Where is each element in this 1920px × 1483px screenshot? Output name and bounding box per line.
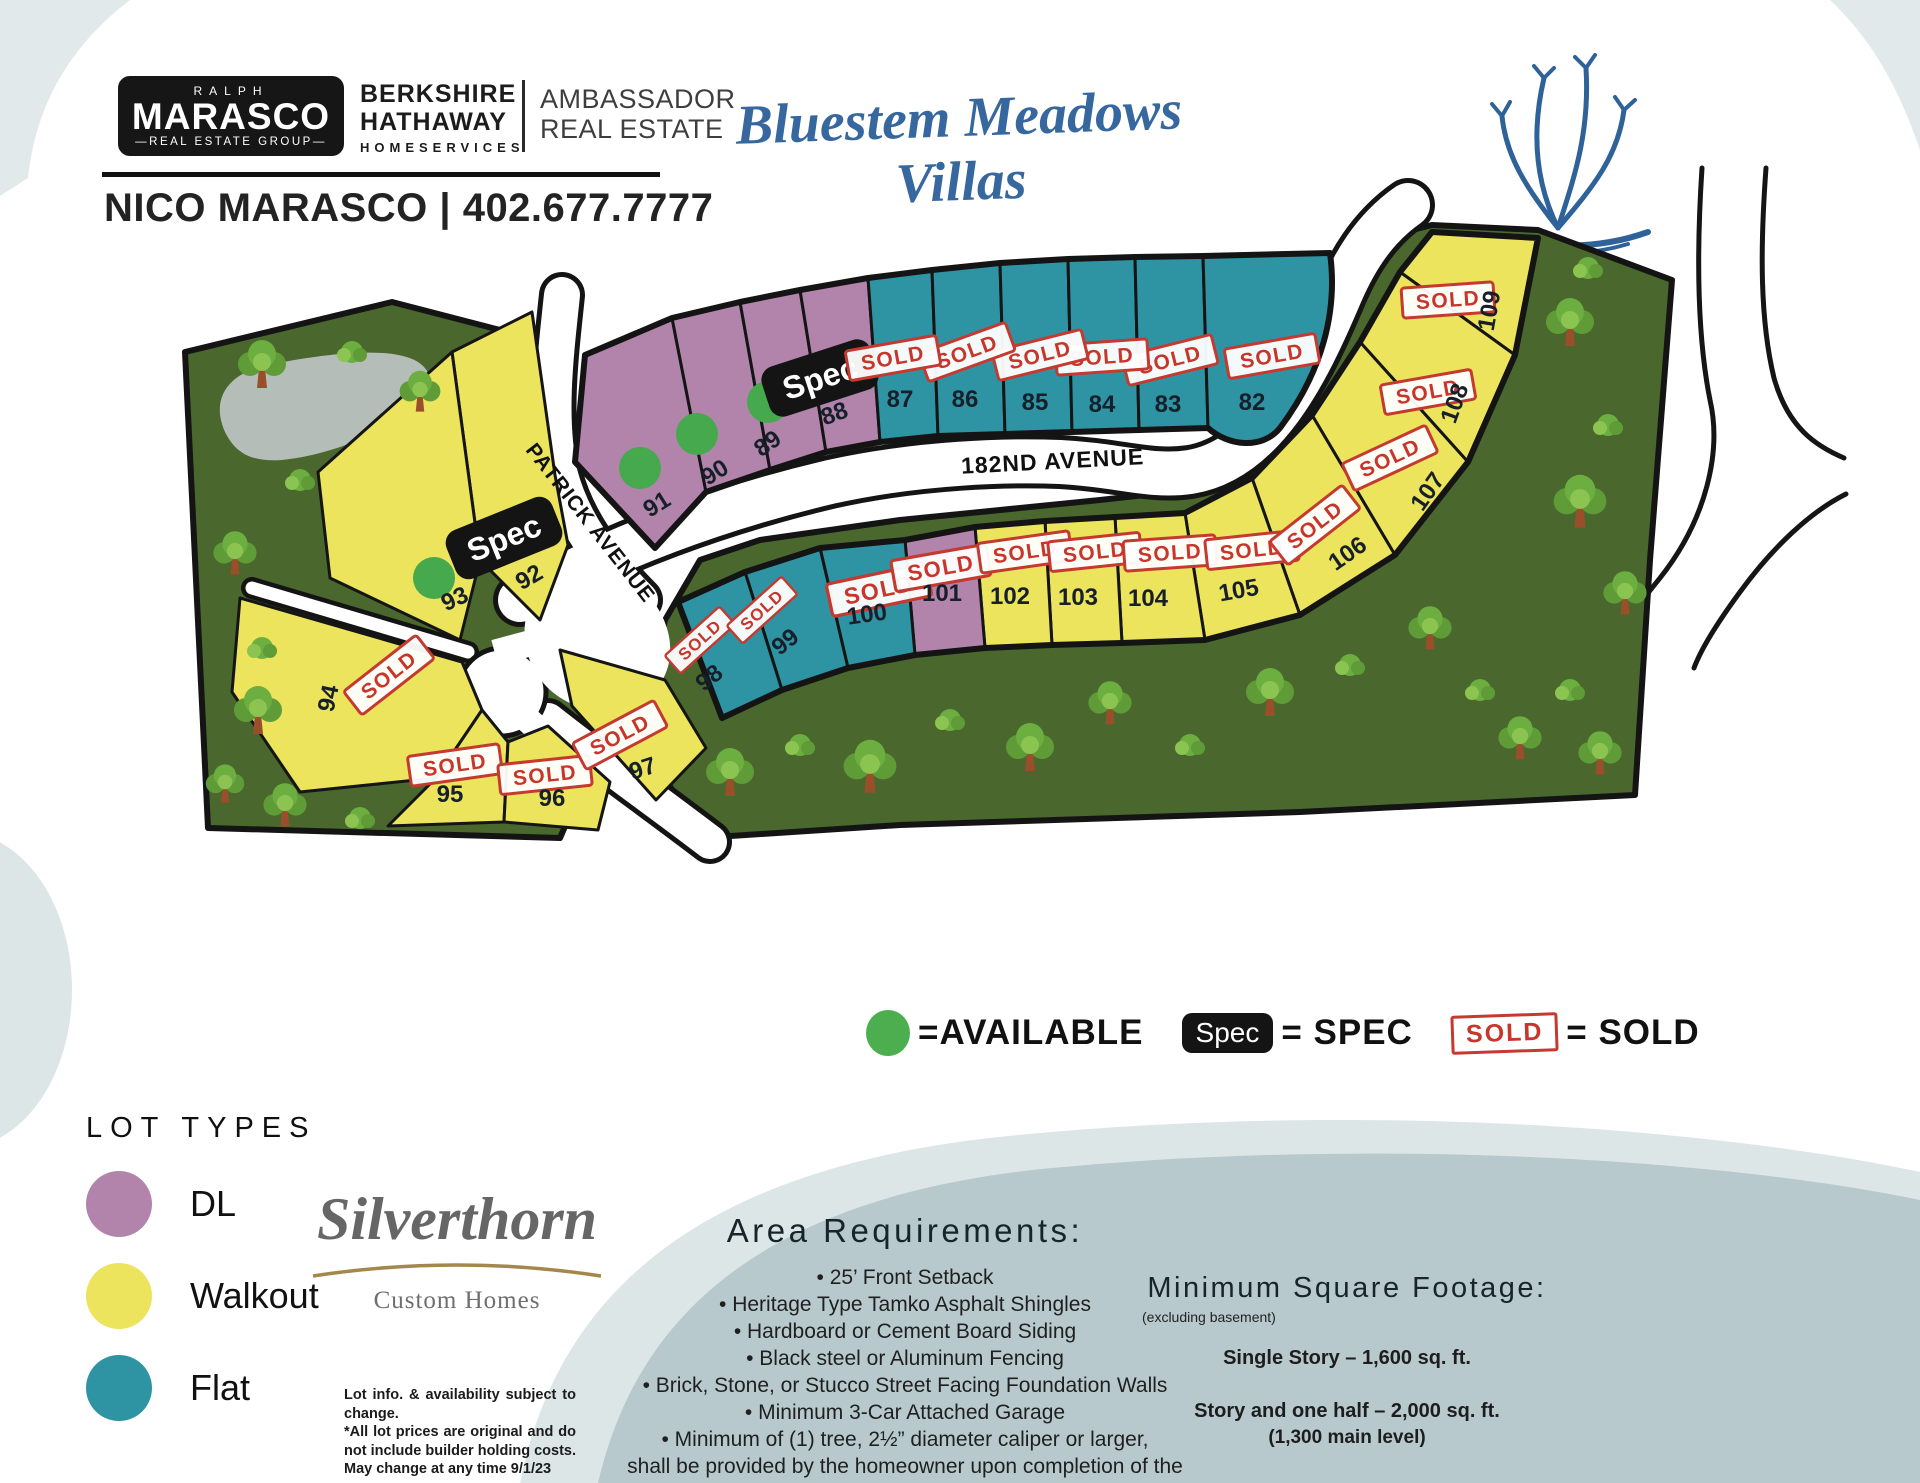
lot-types-title: LOT TYPES bbox=[86, 1112, 319, 1145]
lot-87-number: 87 bbox=[887, 386, 914, 413]
lot-85-number: 85 bbox=[1022, 389, 1049, 416]
sqft-title: Minimum Square Footage: bbox=[1142, 1272, 1552, 1305]
lot-84-number: 84 bbox=[1089, 391, 1116, 418]
builder-tagline: Custom Homes bbox=[292, 1287, 622, 1315]
flat-color-swatch bbox=[86, 1355, 152, 1421]
lot-103-number: 103 bbox=[1058, 584, 1098, 611]
available-dot-lot-90 bbox=[676, 413, 718, 455]
svg-text:SOLD: SOLD bbox=[1137, 540, 1203, 567]
area-requirements-list: 25’ Front Setback Heritage Type Tamko As… bbox=[622, 1264, 1188, 1483]
lot-82-number: 82 bbox=[1239, 389, 1266, 416]
disclaimer-line1: Lot info. & availability subject to chan… bbox=[344, 1386, 576, 1423]
legend-available: =AVAILABLE bbox=[866, 1010, 1144, 1056]
lot-95-number: 95 bbox=[437, 781, 464, 808]
lot-type-dl: DL bbox=[86, 1171, 319, 1237]
builder-name: Silverthorn bbox=[292, 1185, 622, 1254]
lot-type-walkout: Walkout bbox=[86, 1263, 319, 1329]
requirement-item: Heritage Type Tamko Asphalt Shingles bbox=[622, 1291, 1188, 1318]
badge-sub-text: —REAL ESTATE GROUP— bbox=[135, 136, 327, 148]
bluestem-grass-logo bbox=[1488, 55, 1648, 253]
sqft-single-story: Single Story – 1,600 sq. ft. bbox=[1142, 1347, 1552, 1370]
brokerage-line2: HATHAWAY bbox=[360, 108, 525, 136]
legend-sold: SOLD = SOLD bbox=[1451, 1013, 1700, 1053]
flyer-page: 182ND AVENUE PATRICK AVENUE Spec Spec SO… bbox=[0, 0, 1920, 1483]
requirement-item: Minimum 3-Car Attached Garage bbox=[622, 1399, 1188, 1426]
agent-contact-line: NICO MARASCO | 402.677.7777 bbox=[104, 186, 713, 231]
requirement-item: Minimum of (1) tree, 2½” diameter calipe… bbox=[622, 1426, 1188, 1453]
marasco-logo-badge: RALPH MARASCO —REAL ESTATE GROUP— bbox=[118, 76, 344, 156]
brokerage-line3: HOMESERVICES bbox=[360, 140, 525, 155]
header-rule bbox=[102, 172, 660, 177]
dl-color-swatch bbox=[86, 1171, 152, 1237]
dl-label: DL bbox=[190, 1183, 236, 1225]
disclaimer-text: Lot info. & availability subject to chan… bbox=[344, 1386, 576, 1479]
sqft-story-and-half: Story and one half – 2,000 sq. ft. bbox=[1142, 1400, 1552, 1423]
builder-logo: Silverthorn Custom Homes bbox=[292, 1185, 622, 1315]
minimum-square-footage: Minimum Square Footage: (excluding basem… bbox=[1142, 1272, 1552, 1449]
badge-name-text: MARASCO bbox=[132, 98, 330, 136]
berkshire-hathaway-block: BERKSHIRE HATHAWAY HOMESERVICES bbox=[360, 80, 525, 155]
sold-stamp-icon: SOLD bbox=[1450, 1012, 1559, 1055]
legend-sold-label: = SOLD bbox=[1566, 1013, 1699, 1053]
requirement-item: Black steel or Aluminum Fencing bbox=[622, 1345, 1188, 1372]
disclaimer-line2: *All lot prices are original and do not … bbox=[344, 1423, 576, 1479]
flat-label: Flat bbox=[190, 1367, 250, 1409]
legend-spec-label: = SPEC bbox=[1281, 1013, 1412, 1053]
brokerage-line1: BERKSHIRE bbox=[360, 80, 525, 108]
community-title: Bluestem Meadows Villas bbox=[698, 77, 1222, 223]
legend-available-label: =AVAILABLE bbox=[918, 1013, 1144, 1053]
available-dot-icon bbox=[866, 1010, 910, 1056]
svg-text:SOLD: SOLD bbox=[1415, 287, 1481, 314]
header-divider bbox=[522, 80, 525, 152]
lot-102-number: 102 bbox=[990, 583, 1030, 610]
available-dot-lot-91 bbox=[619, 447, 661, 489]
legend-spec: Spec = SPEC bbox=[1182, 1013, 1413, 1053]
requirement-continuation: shall be provided by the homeowner upon … bbox=[622, 1453, 1188, 1483]
builder-gold-arc bbox=[307, 1254, 607, 1280]
lot-type-flat: Flat bbox=[86, 1355, 319, 1421]
lot-104-number: 104 bbox=[1128, 585, 1169, 612]
sqft-main-level: (1,300 main level) bbox=[1142, 1427, 1552, 1449]
lot-100-number: 100 bbox=[845, 598, 888, 630]
area-requirements: Area Requirements: 25’ Front Setback Her… bbox=[622, 1212, 1188, 1483]
area-requirements-title: Area Requirements: bbox=[622, 1212, 1188, 1250]
walkout-color-swatch bbox=[86, 1263, 152, 1329]
lot-101-number: 101 bbox=[922, 580, 962, 607]
requirement-item: 25’ Front Setback bbox=[622, 1264, 1188, 1291]
spec-chip-icon: Spec bbox=[1182, 1013, 1274, 1053]
lot-86-number: 86 bbox=[952, 386, 979, 413]
lot-96-number: 96 bbox=[539, 785, 566, 812]
status-legend: =AVAILABLE Spec = SPEC SOLD = SOLD bbox=[866, 1010, 1700, 1056]
lot-types-legend: LOT TYPES DL Walkout Flat bbox=[86, 1112, 319, 1421]
sqft-note: (excluding basement) bbox=[1142, 1309, 1552, 1325]
sold-stamp-lot-104: SOLD bbox=[1123, 535, 1217, 571]
lot-83-number: 83 bbox=[1155, 391, 1182, 418]
requirement-item: Hardboard or Cement Board Siding bbox=[622, 1318, 1188, 1345]
requirement-item: Brick, Stone, or Stucco Street Facing Fo… bbox=[622, 1372, 1188, 1399]
